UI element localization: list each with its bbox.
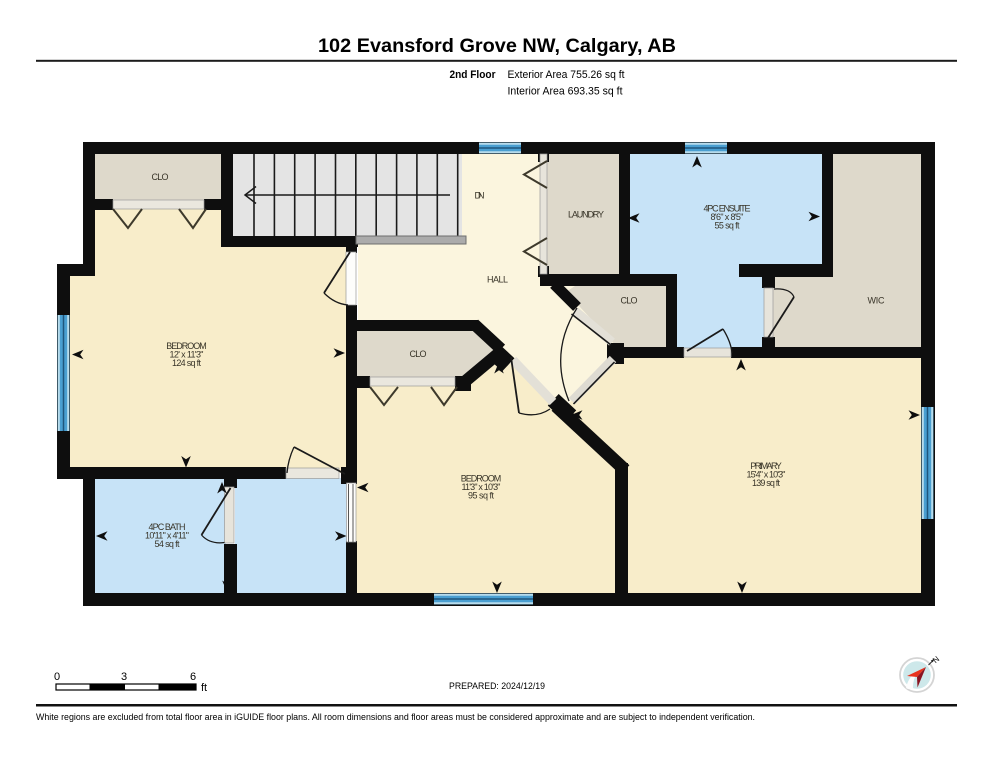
svg-text:55 sq ft: 55 sq ft xyxy=(715,221,740,231)
svg-text:LAUNDRY: LAUNDRY xyxy=(568,210,604,220)
svg-text:Exterior Area 755.26 sq ft: Exterior Area 755.26 sq ft xyxy=(508,69,625,81)
svg-text:N: N xyxy=(931,654,941,665)
svg-text:CLO: CLO xyxy=(152,172,169,182)
svg-text:CLO: CLO xyxy=(621,296,638,306)
svg-text:WIC: WIC xyxy=(868,296,886,306)
svg-text:0: 0 xyxy=(54,671,60,683)
svg-text:CLO: CLO xyxy=(410,349,427,359)
svg-text:3: 3 xyxy=(121,671,127,683)
svg-text:54 sq ft: 54 sq ft xyxy=(155,539,180,549)
svg-text:DN: DN xyxy=(475,191,485,201)
svg-text:6: 6 xyxy=(190,671,196,683)
svg-text:PREPARED: 2024/12/19: PREPARED: 2024/12/19 xyxy=(449,681,545,691)
svg-text:Interior Area 693.35 sq ft: Interior Area 693.35 sq ft xyxy=(508,86,623,98)
svg-text:ft: ft xyxy=(201,682,207,694)
svg-text:124 sq ft: 124 sq ft xyxy=(172,358,201,368)
svg-text:White regions are excluded fro: White regions are excluded from total fl… xyxy=(36,712,755,722)
svg-text:102 Evansford Grove NW, Calgar: 102 Evansford Grove NW, Calgary, AB xyxy=(318,36,676,57)
svg-text:HALL: HALL xyxy=(487,275,508,285)
svg-text:139 sq ft: 139 sq ft xyxy=(752,478,780,488)
svg-text:95 sq ft: 95 sq ft xyxy=(468,491,494,501)
svg-text:2nd Floor: 2nd Floor xyxy=(450,69,497,81)
